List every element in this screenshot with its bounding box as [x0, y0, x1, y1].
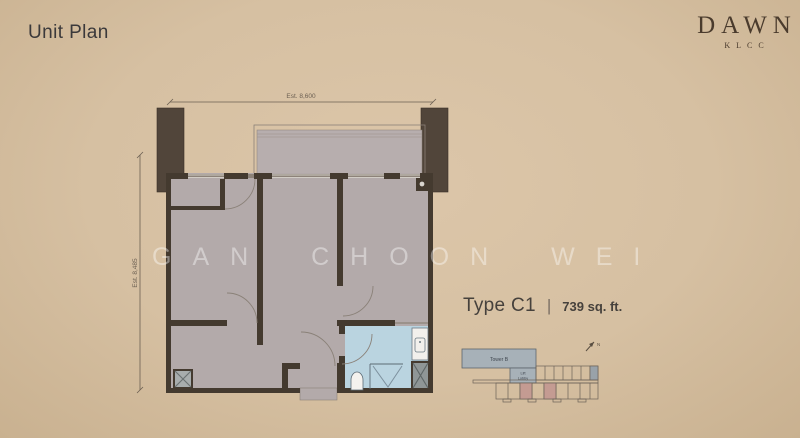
- hatched-column-bottom-left: [174, 370, 192, 388]
- dimension-top: Est. 8,600: [167, 93, 436, 105]
- brand-logo-subtitle: KLCC: [693, 41, 800, 50]
- dimension-left: Est. 8,485: [132, 152, 143, 393]
- floor-plan-drawing: Est. 8,600 Est. 8,485: [130, 78, 460, 413]
- keyplan-highlighted-unit-1: [520, 383, 532, 399]
- key-plan-drawing: N Tower B Lift Lobby: [458, 336, 618, 408]
- page-title: Unit Plan: [28, 22, 109, 44]
- keyplan-tower-label: Tower B: [490, 357, 509, 363]
- vanity-sink: [412, 328, 428, 360]
- unit-info-separator: |: [547, 296, 551, 316]
- balcony: [254, 125, 425, 178]
- dimension-left-label: Est. 8,485: [132, 258, 139, 288]
- unit-type-label: Type C1: [463, 295, 536, 317]
- north-arrow-icon: N: [586, 342, 600, 351]
- brand-logo-name: DAWN: [693, 12, 800, 40]
- equipment-box: [416, 178, 428, 191]
- keyplan-highlighted-unit-2: [544, 383, 556, 399]
- entry-step: [300, 388, 337, 400]
- toilet-icon: [351, 372, 363, 390]
- brand-logo: DAWN KLCC: [693, 12, 795, 50]
- keyplan-lower-units: [496, 383, 598, 402]
- slide: Unit Plan DAWN KLCC Est. 8,600 Est. 8,48…: [0, 0, 800, 438]
- keyplan-lift-lobby: [510, 368, 536, 383]
- unit-area-label: 739 sq. ft.: [562, 299, 622, 314]
- hatched-column-bottom-right: [412, 362, 429, 389]
- keyplan-upper-units: [536, 366, 598, 380]
- unit-info: Type C1 | 739 sq. ft.: [463, 295, 622, 317]
- floor-plan: Est. 8,600 Est. 8,485: [130, 78, 460, 413]
- north-arrow-label: N: [597, 342, 600, 347]
- dimension-top-label: Est. 8,600: [286, 93, 316, 100]
- key-plan: N Tower B Lift Lobby: [458, 336, 618, 408]
